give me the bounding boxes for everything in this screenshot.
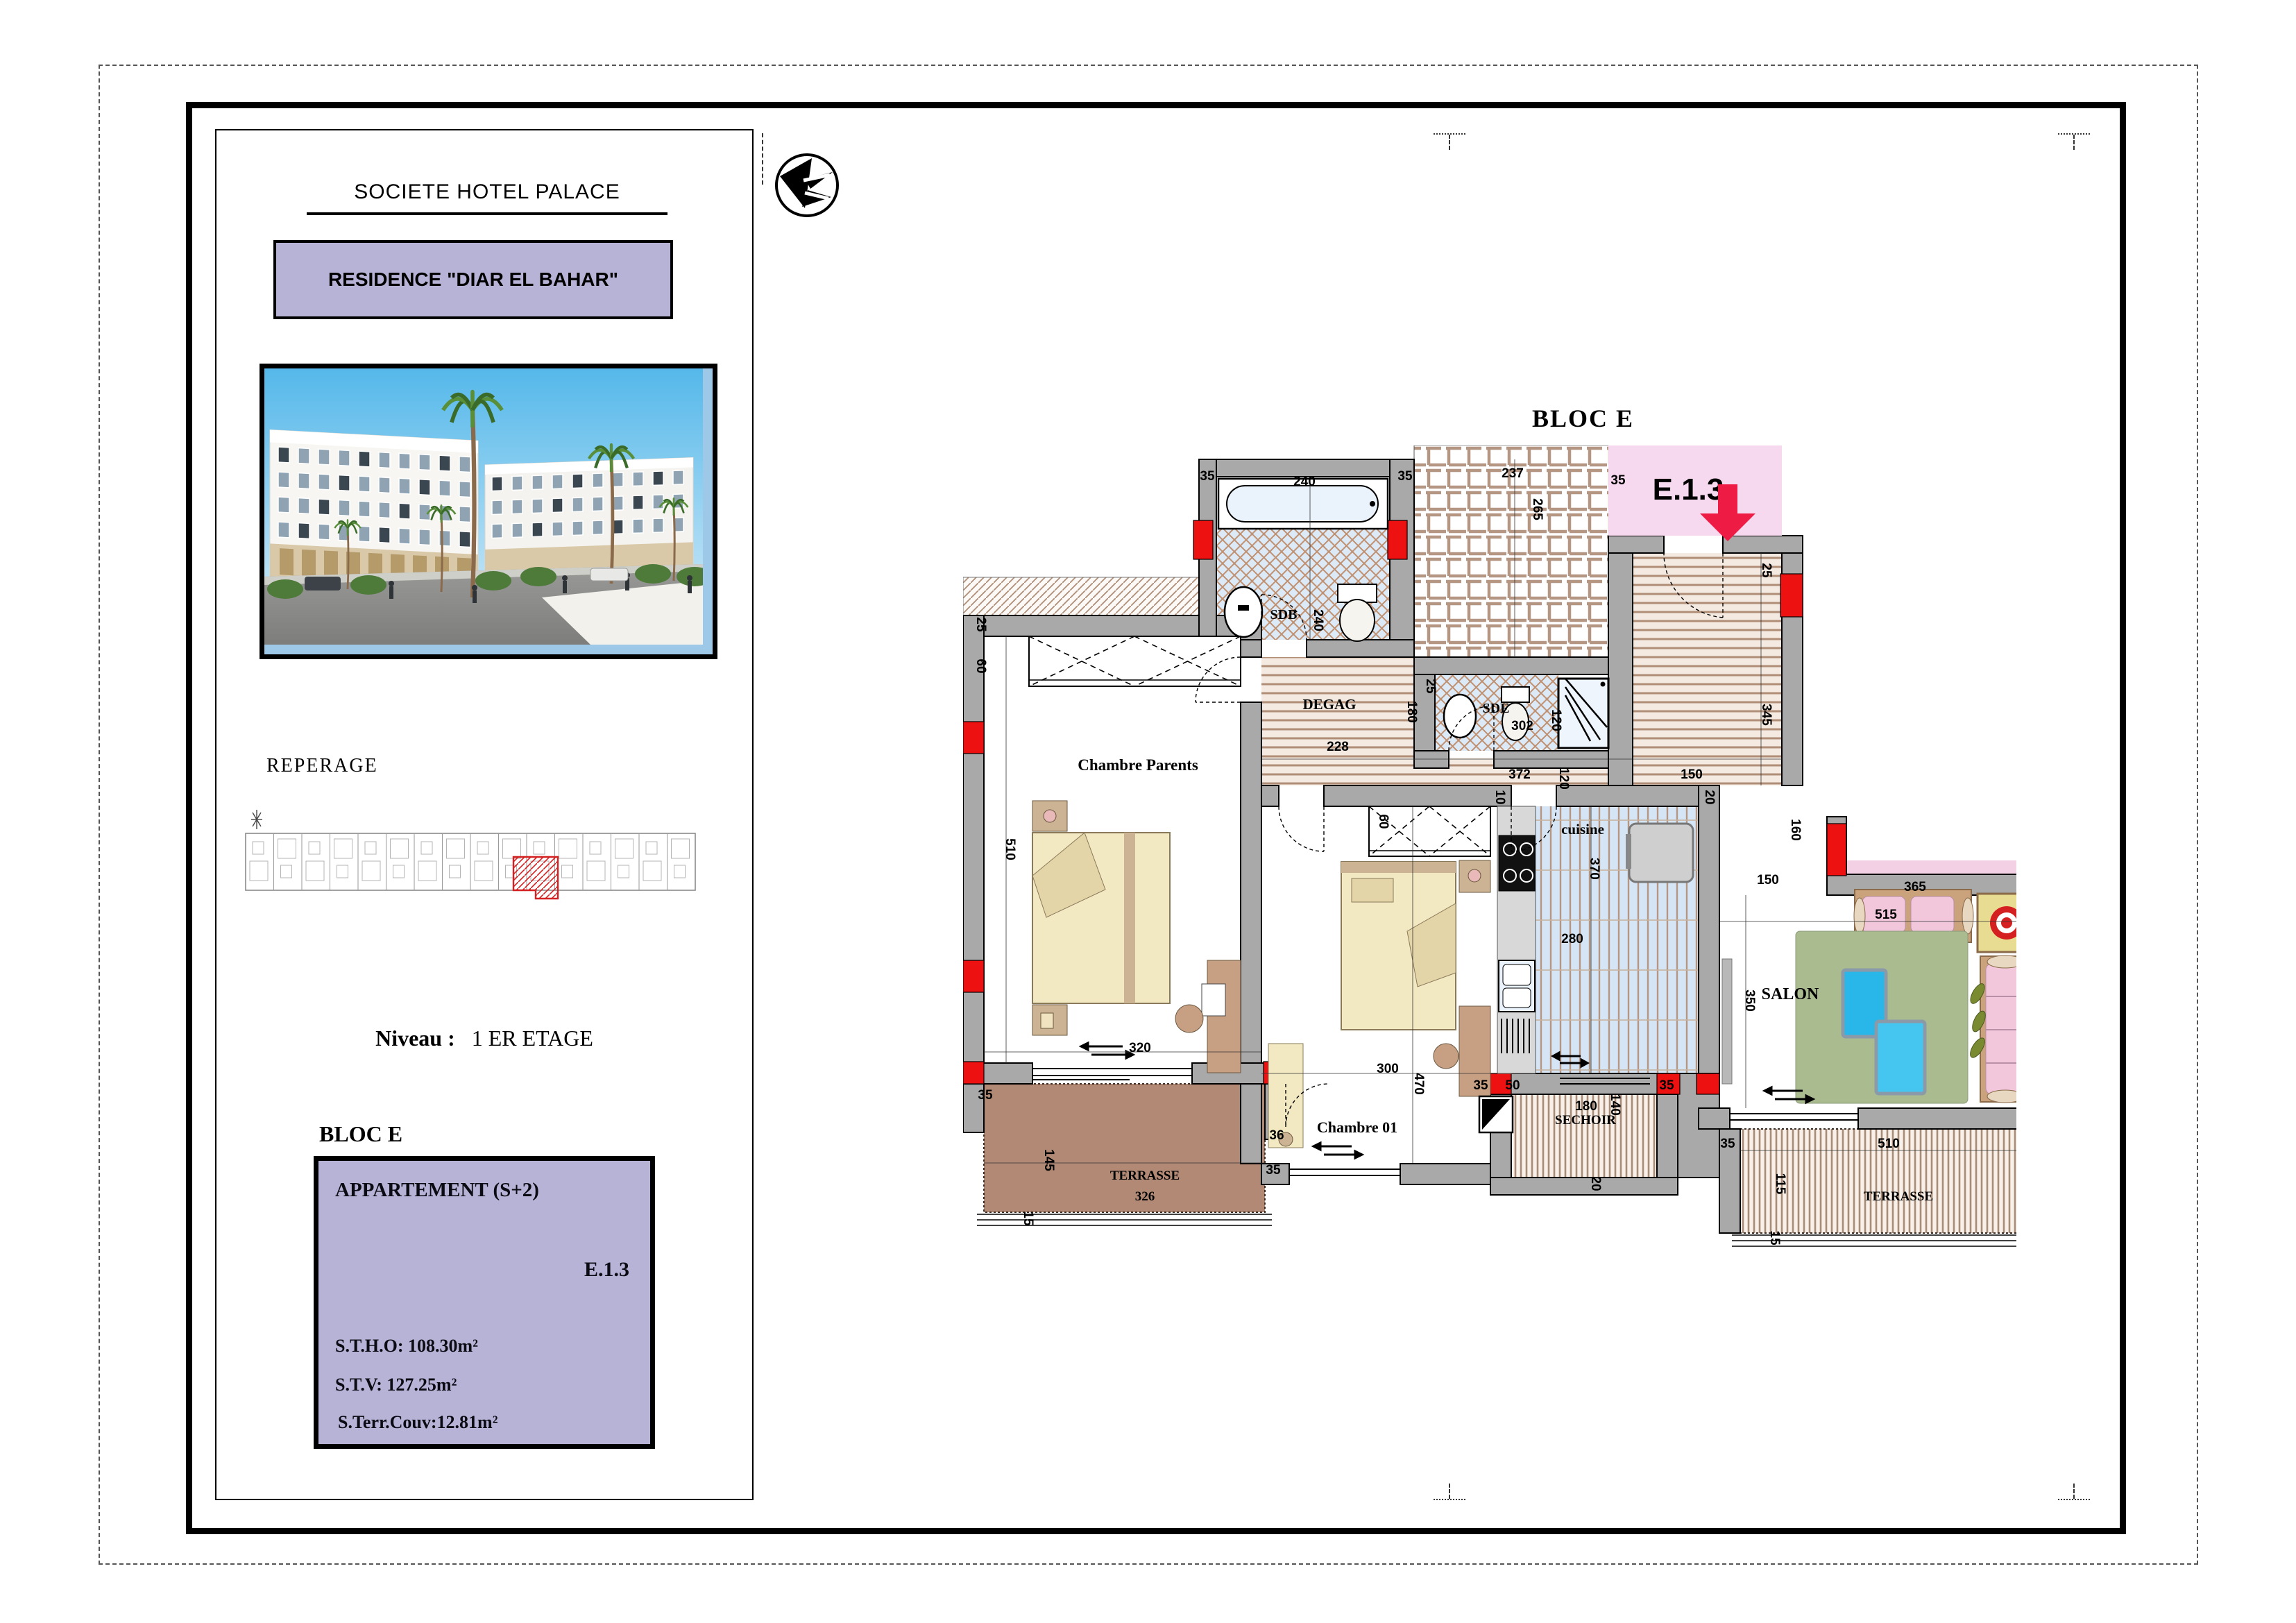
dim-text: 320 (1129, 1041, 1151, 1055)
dim-text: 240 (1311, 609, 1325, 631)
registration-mark-top-right (2058, 133, 2090, 135)
bloc-label: BLOC E (319, 1121, 402, 1147)
dim-text: 10 (1493, 790, 1507, 804)
dim-text: 60 (973, 658, 988, 673)
room-text: SALON (1762, 985, 1819, 1003)
room-text: TERRASSE (1110, 1169, 1180, 1183)
dim-text: 25 (1759, 563, 1774, 578)
niveau-value: 1 ER ETAGE (472, 1026, 593, 1051)
dim-text: 60 (1376, 814, 1391, 829)
niveau-label: Niveau : (375, 1026, 455, 1051)
dim-text: 35 (1659, 1078, 1674, 1093)
dim-text: 35 (1266, 1163, 1281, 1178)
north-arrow-icon (769, 147, 845, 223)
dim-text: 35 (1397, 469, 1413, 484)
dim-text: 237 (1502, 466, 1524, 481)
surface-stho: S.T.H.O: 108.30m² (335, 1336, 478, 1357)
dim-text: 372 (1508, 767, 1531, 782)
residence-photo (260, 364, 717, 659)
unit-banner-label: E.1.3 (1653, 473, 1724, 507)
apartment-type: APPARTEMENT (S+2) (335, 1179, 539, 1202)
dim-text: 120 (1556, 767, 1571, 790)
dim-text: 35 (978, 1088, 993, 1103)
car-white (590, 568, 628, 581)
dim-text: 470 (1411, 1073, 1426, 1095)
unit-banner: E.1.3 (1608, 445, 1782, 541)
apartment-unit: E.1.3 (584, 1258, 629, 1282)
dim-text: 36 (1269, 1128, 1284, 1143)
reperage-label: REPERAGE (266, 755, 378, 777)
company-underline (307, 212, 667, 215)
dim-text: 180 (1404, 701, 1419, 723)
reperage-minimap (237, 807, 733, 921)
company-title: SOCIETE HOTEL PALACE (293, 180, 681, 204)
title-block-panel: SOCIETE HOTEL PALACE RESIDENCE "DIAR EL … (215, 129, 754, 1500)
minimap-north-star (251, 810, 262, 829)
room-text: TERRASSE (1864, 1189, 1933, 1204)
room-text: 326 (1135, 1189, 1155, 1204)
dim-text: 120 (1549, 709, 1563, 731)
dim-text: 510 (1003, 838, 1017, 860)
registration-mark-top (1434, 133, 1465, 135)
surface-stv: S.T.V: 127.25m² (335, 1375, 457, 1395)
dim-text: 345 (1759, 704, 1774, 726)
dim-text: 145 (1041, 1149, 1056, 1171)
dim-text: 20 (1588, 1176, 1603, 1191)
dim-text: 515 (1875, 908, 1897, 922)
dim-text: 280 (1561, 932, 1583, 946)
registration-mark-bottom (1434, 1499, 1465, 1500)
dim-text: 160 (1788, 819, 1803, 841)
floor-plan: E.1.3 (963, 445, 2016, 1254)
dim-text: 228 (1327, 740, 1349, 754)
dim-text: 50 (1505, 1078, 1520, 1093)
dim-text: 15 (1021, 1211, 1035, 1226)
room-text: Chambre 01 (1317, 1119, 1397, 1136)
plan-bloc-title: BLOC E (1532, 404, 1634, 433)
room-text: Chambre Parents (1078, 756, 1198, 774)
highlighted-unit (513, 857, 558, 899)
dim-text: 510 (1878, 1137, 1900, 1151)
dim-text: 180 (1575, 1099, 1597, 1114)
dim-text: 150 (1757, 873, 1779, 887)
dim-text: 15 (1767, 1230, 1782, 1246)
dim-text: 115 (1773, 1173, 1787, 1195)
dim-text: 370 (1587, 858, 1601, 880)
surface-terr-couv: S.Terr.Couv:12.81m² (338, 1412, 498, 1433)
dim-text: 265 (1530, 498, 1545, 520)
dim-text: 350 (1742, 989, 1757, 1012)
dim-text: 365 (1904, 880, 1926, 894)
dim-text: 140 (1608, 1094, 1622, 1116)
dim-text: 240 (1293, 475, 1316, 489)
room-text: SDE (1483, 701, 1510, 716)
room-text: DEGAG (1302, 696, 1356, 713)
dim-text: 35 (1720, 1137, 1735, 1151)
dim-text: 20 (1702, 790, 1717, 804)
residence-name-box: RESIDENCE "DIAR EL BAHAR" (273, 240, 673, 319)
dim-text: 302 (1511, 719, 1533, 733)
neighbor-terrace-hatch (963, 577, 1202, 615)
apartment-info-box: APPARTEMENT (S+2) E.1.3 S.T.H.O: 108.30m… (314, 1156, 655, 1449)
registration-mark-bottom-right (2058, 1499, 2090, 1500)
dim-text: 35 (1473, 1078, 1488, 1093)
car-dark (305, 577, 341, 590)
building-right (485, 457, 693, 575)
niveau-line: Niveau : 1 ER ETAGE (216, 1026, 752, 1051)
room-text: cuisine (1561, 821, 1604, 838)
dim-text: 35 (1200, 469, 1215, 484)
room-text: SDB (1270, 607, 1298, 622)
dim-text: 300 (1377, 1062, 1399, 1076)
plan-sheet-page: { "page": { "company": "SOCIETE HOTEL PA… (0, 0, 2296, 1623)
dim-text: 150 (1681, 767, 1703, 782)
registration-mark-left (762, 133, 763, 185)
dim-text: 35 (1610, 473, 1626, 488)
dim-text: 25 (1423, 679, 1438, 694)
dim-text: 25 (973, 617, 988, 632)
room-text: SECHOIR (1555, 1113, 1616, 1128)
